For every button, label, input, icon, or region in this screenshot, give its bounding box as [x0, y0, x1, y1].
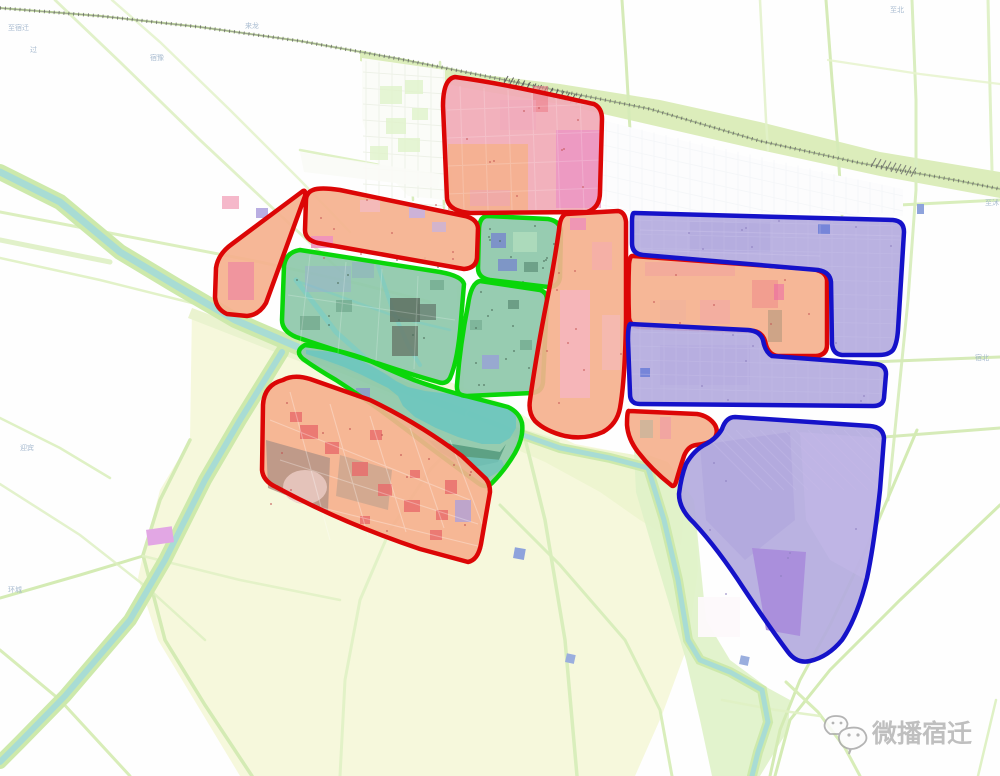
svg-text:迎宾: 迎宾 [20, 443, 34, 452]
svg-text:过: 过 [30, 45, 37, 54]
svg-text:环城: 环城 [8, 586, 22, 594]
svg-text:至北: 至北 [890, 6, 904, 14]
svg-text:来龙: 来龙 [245, 21, 259, 30]
svg-text:微播宿迁: 微播宿迁 [871, 719, 972, 748]
svg-text:至宿迁: 至宿迁 [8, 23, 29, 32]
svg-text:至沭: 至沭 [985, 198, 999, 207]
svg-text:宿北: 宿北 [975, 353, 989, 362]
svg-text:宿豫: 宿豫 [150, 53, 164, 62]
